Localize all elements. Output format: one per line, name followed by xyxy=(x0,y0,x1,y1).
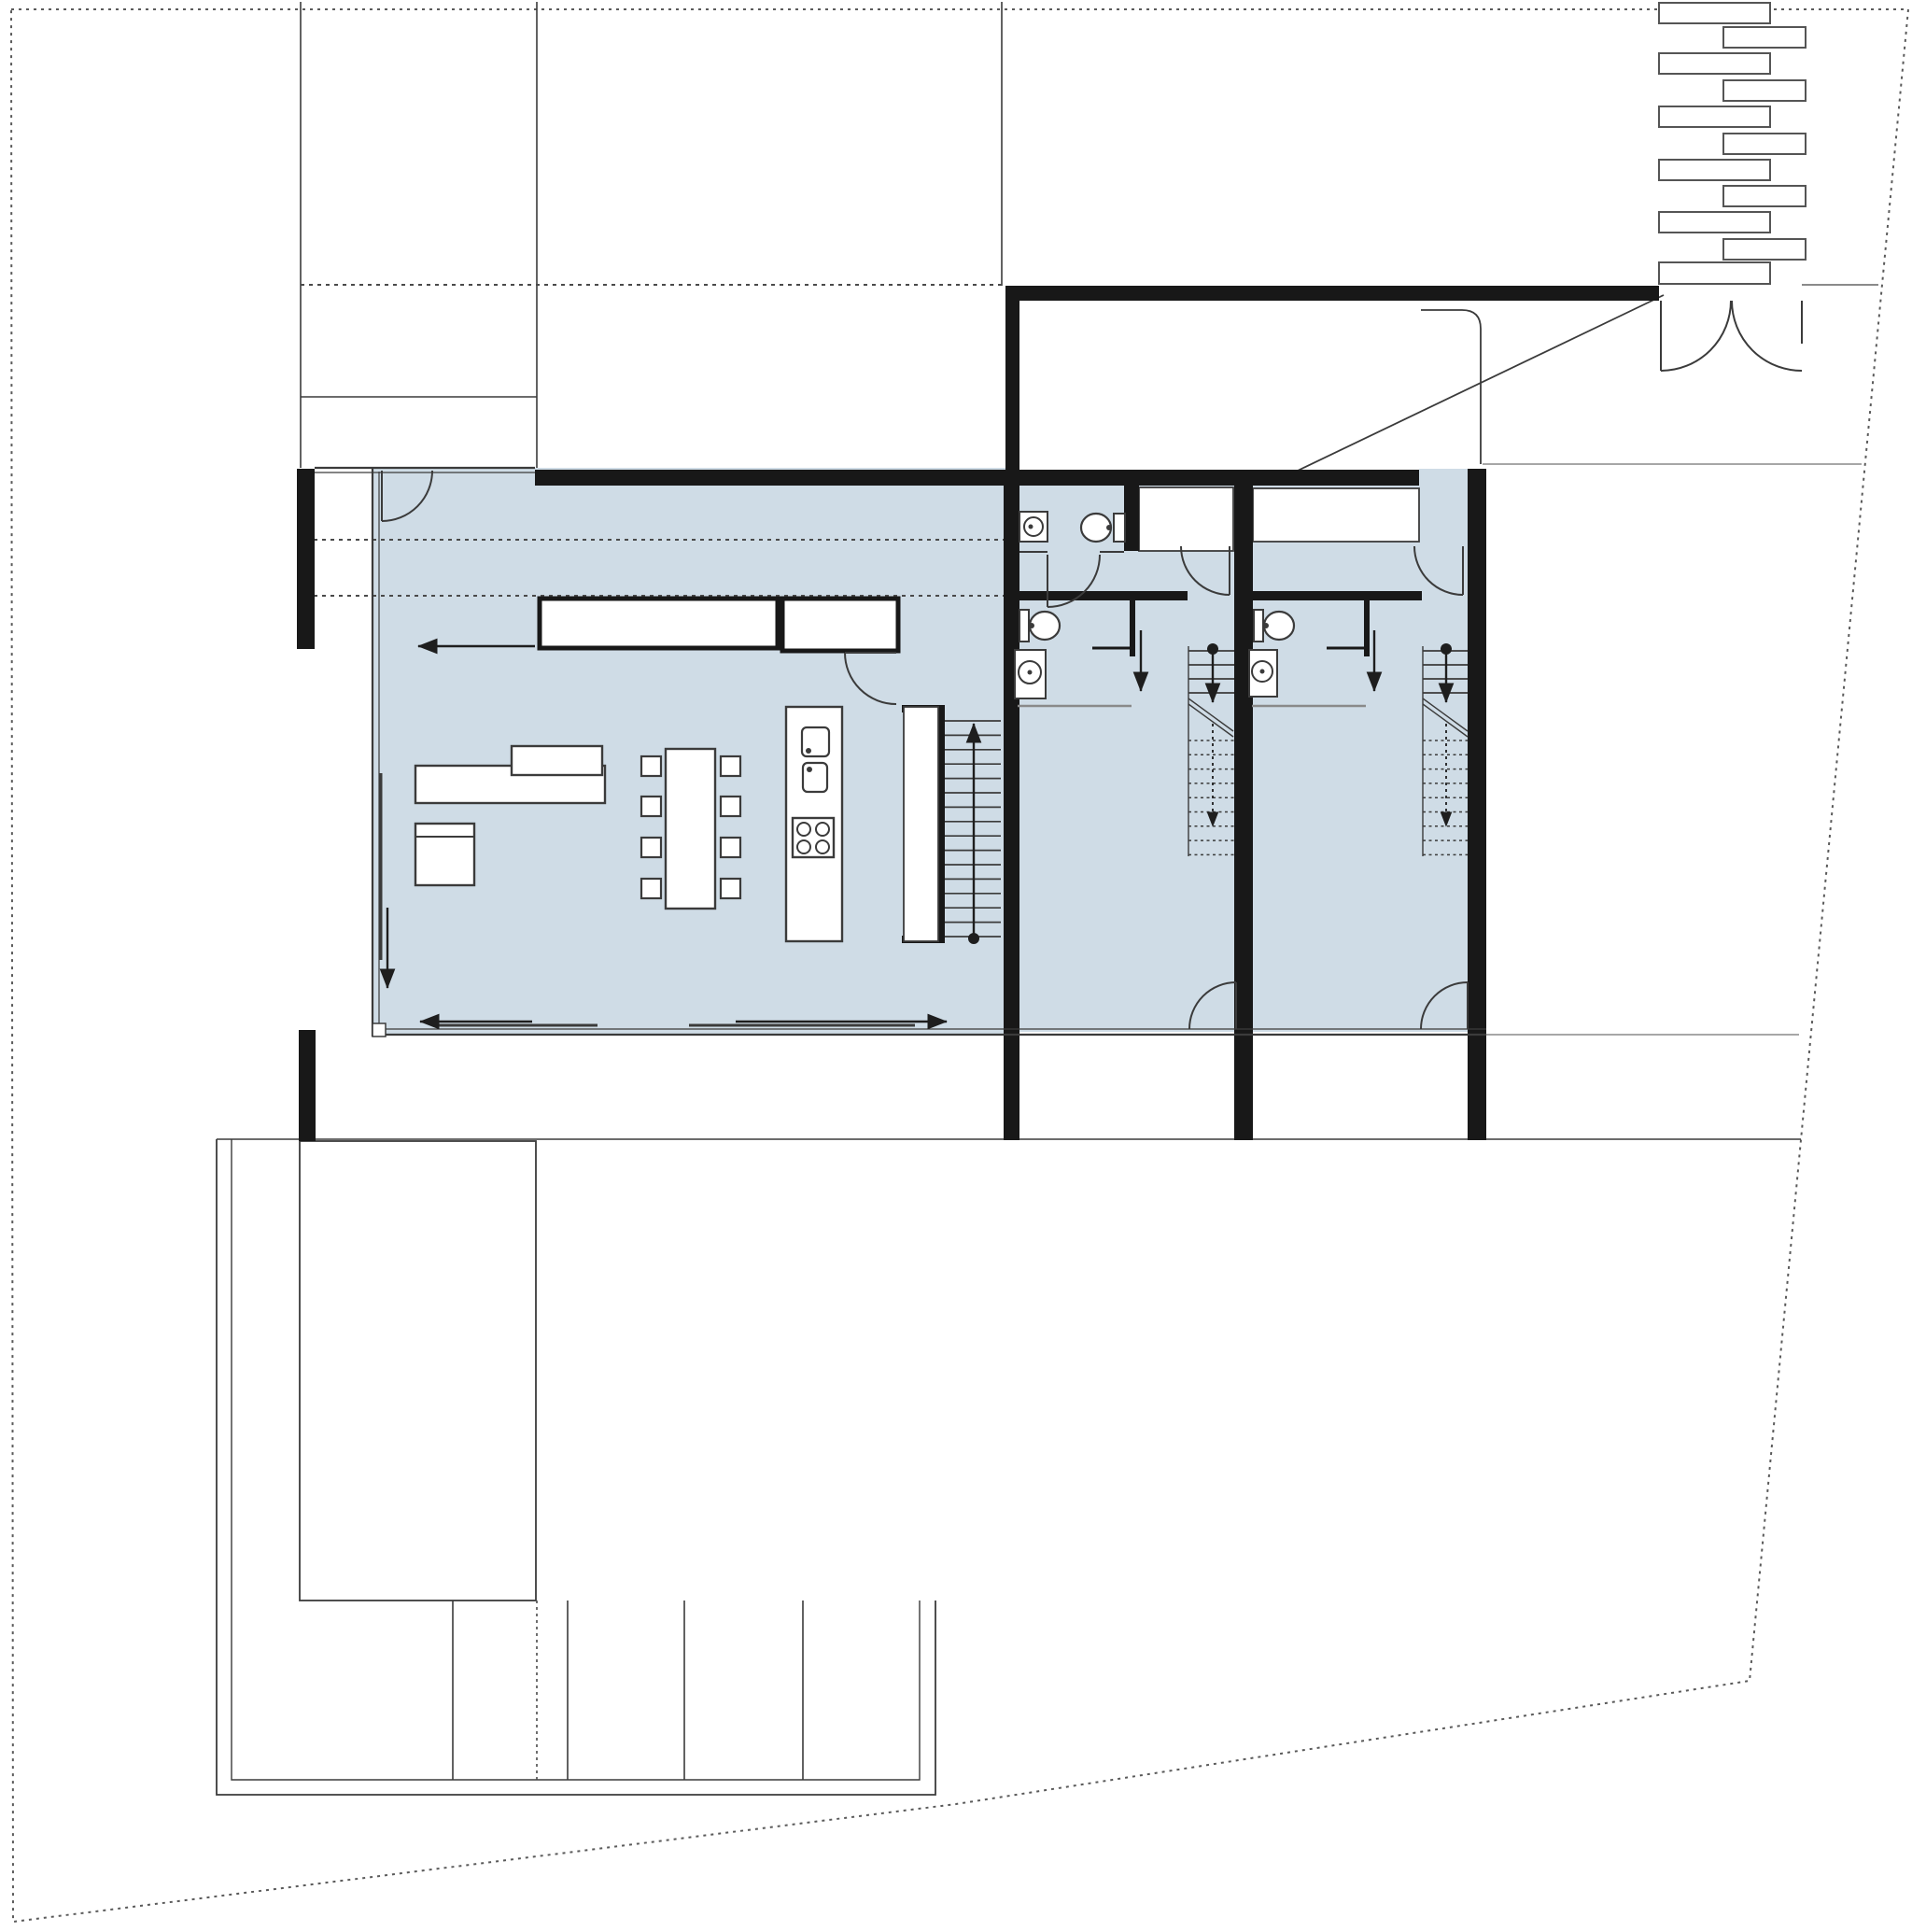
island-sink-1-drain xyxy=(806,748,811,754)
wall-bath-1 xyxy=(1019,591,1188,600)
entry-niche-1 xyxy=(1139,487,1233,551)
dining-chair xyxy=(641,838,661,857)
burner xyxy=(797,823,810,836)
dining-chair xyxy=(721,756,740,776)
layer-entry-steps xyxy=(1659,3,1806,284)
dining-table xyxy=(666,749,715,909)
dining-chair xyxy=(721,879,740,898)
sink-drain xyxy=(1028,670,1033,675)
toilet-dot xyxy=(1263,623,1269,628)
unit-1 xyxy=(1019,486,1234,1032)
wall-wc-niche xyxy=(1124,486,1139,551)
island-sink-2-drain xyxy=(807,767,812,772)
kitchen-block xyxy=(782,599,898,651)
corner-mullion xyxy=(373,1023,386,1037)
wall-stub-upper xyxy=(297,469,315,649)
kitchen-counter xyxy=(540,599,778,648)
entry-door-swing xyxy=(1661,301,1731,371)
sink-bowl xyxy=(1024,517,1043,536)
garage-block xyxy=(300,1141,536,1601)
toilet-tank xyxy=(1019,610,1029,642)
burner xyxy=(816,823,829,836)
step xyxy=(1659,262,1770,284)
burner xyxy=(797,840,810,853)
unit-2-strip xyxy=(1419,469,1468,487)
wall-right xyxy=(1468,469,1486,1140)
island-sink-2 xyxy=(803,763,827,792)
step xyxy=(1659,53,1770,74)
step xyxy=(1723,239,1806,260)
step xyxy=(1723,186,1806,206)
entry-niche-2 xyxy=(1253,488,1419,542)
unit-2 xyxy=(1253,486,1468,1032)
sink-drain xyxy=(1029,525,1033,529)
dining-chair xyxy=(641,756,661,776)
dining-chair xyxy=(721,797,740,816)
toilet-dot xyxy=(1029,623,1034,628)
sofa-back xyxy=(512,746,602,775)
sink-drain xyxy=(1260,670,1265,674)
step xyxy=(1723,134,1806,154)
floor-plan xyxy=(0,0,1912,1932)
step xyxy=(1659,106,1770,127)
dining-chair xyxy=(641,797,661,816)
step xyxy=(1659,212,1770,233)
wall-court-top xyxy=(1005,286,1659,301)
toilet-dot xyxy=(1106,525,1112,530)
entry-door-swing xyxy=(1732,301,1802,371)
armchair xyxy=(415,824,474,885)
toilet-tank xyxy=(1114,514,1125,542)
burner xyxy=(816,840,829,853)
plan-svg xyxy=(0,0,1912,1932)
dining-chair xyxy=(641,879,661,898)
wall-top xyxy=(535,470,1419,486)
stair-landing-block xyxy=(904,707,938,941)
wall-stub-lower xyxy=(299,1030,316,1141)
step xyxy=(1723,80,1806,101)
dining-chair xyxy=(721,838,740,857)
layer-niches xyxy=(1139,487,1419,551)
step xyxy=(1659,160,1770,180)
toilet-tank xyxy=(1254,610,1263,642)
wall-bath-2 xyxy=(1253,591,1422,600)
wall-court-left xyxy=(1005,286,1019,486)
step xyxy=(1659,3,1770,23)
step xyxy=(1723,27,1806,48)
wall-party-1 xyxy=(1004,472,1019,1140)
wall-party-2 xyxy=(1234,472,1253,1140)
